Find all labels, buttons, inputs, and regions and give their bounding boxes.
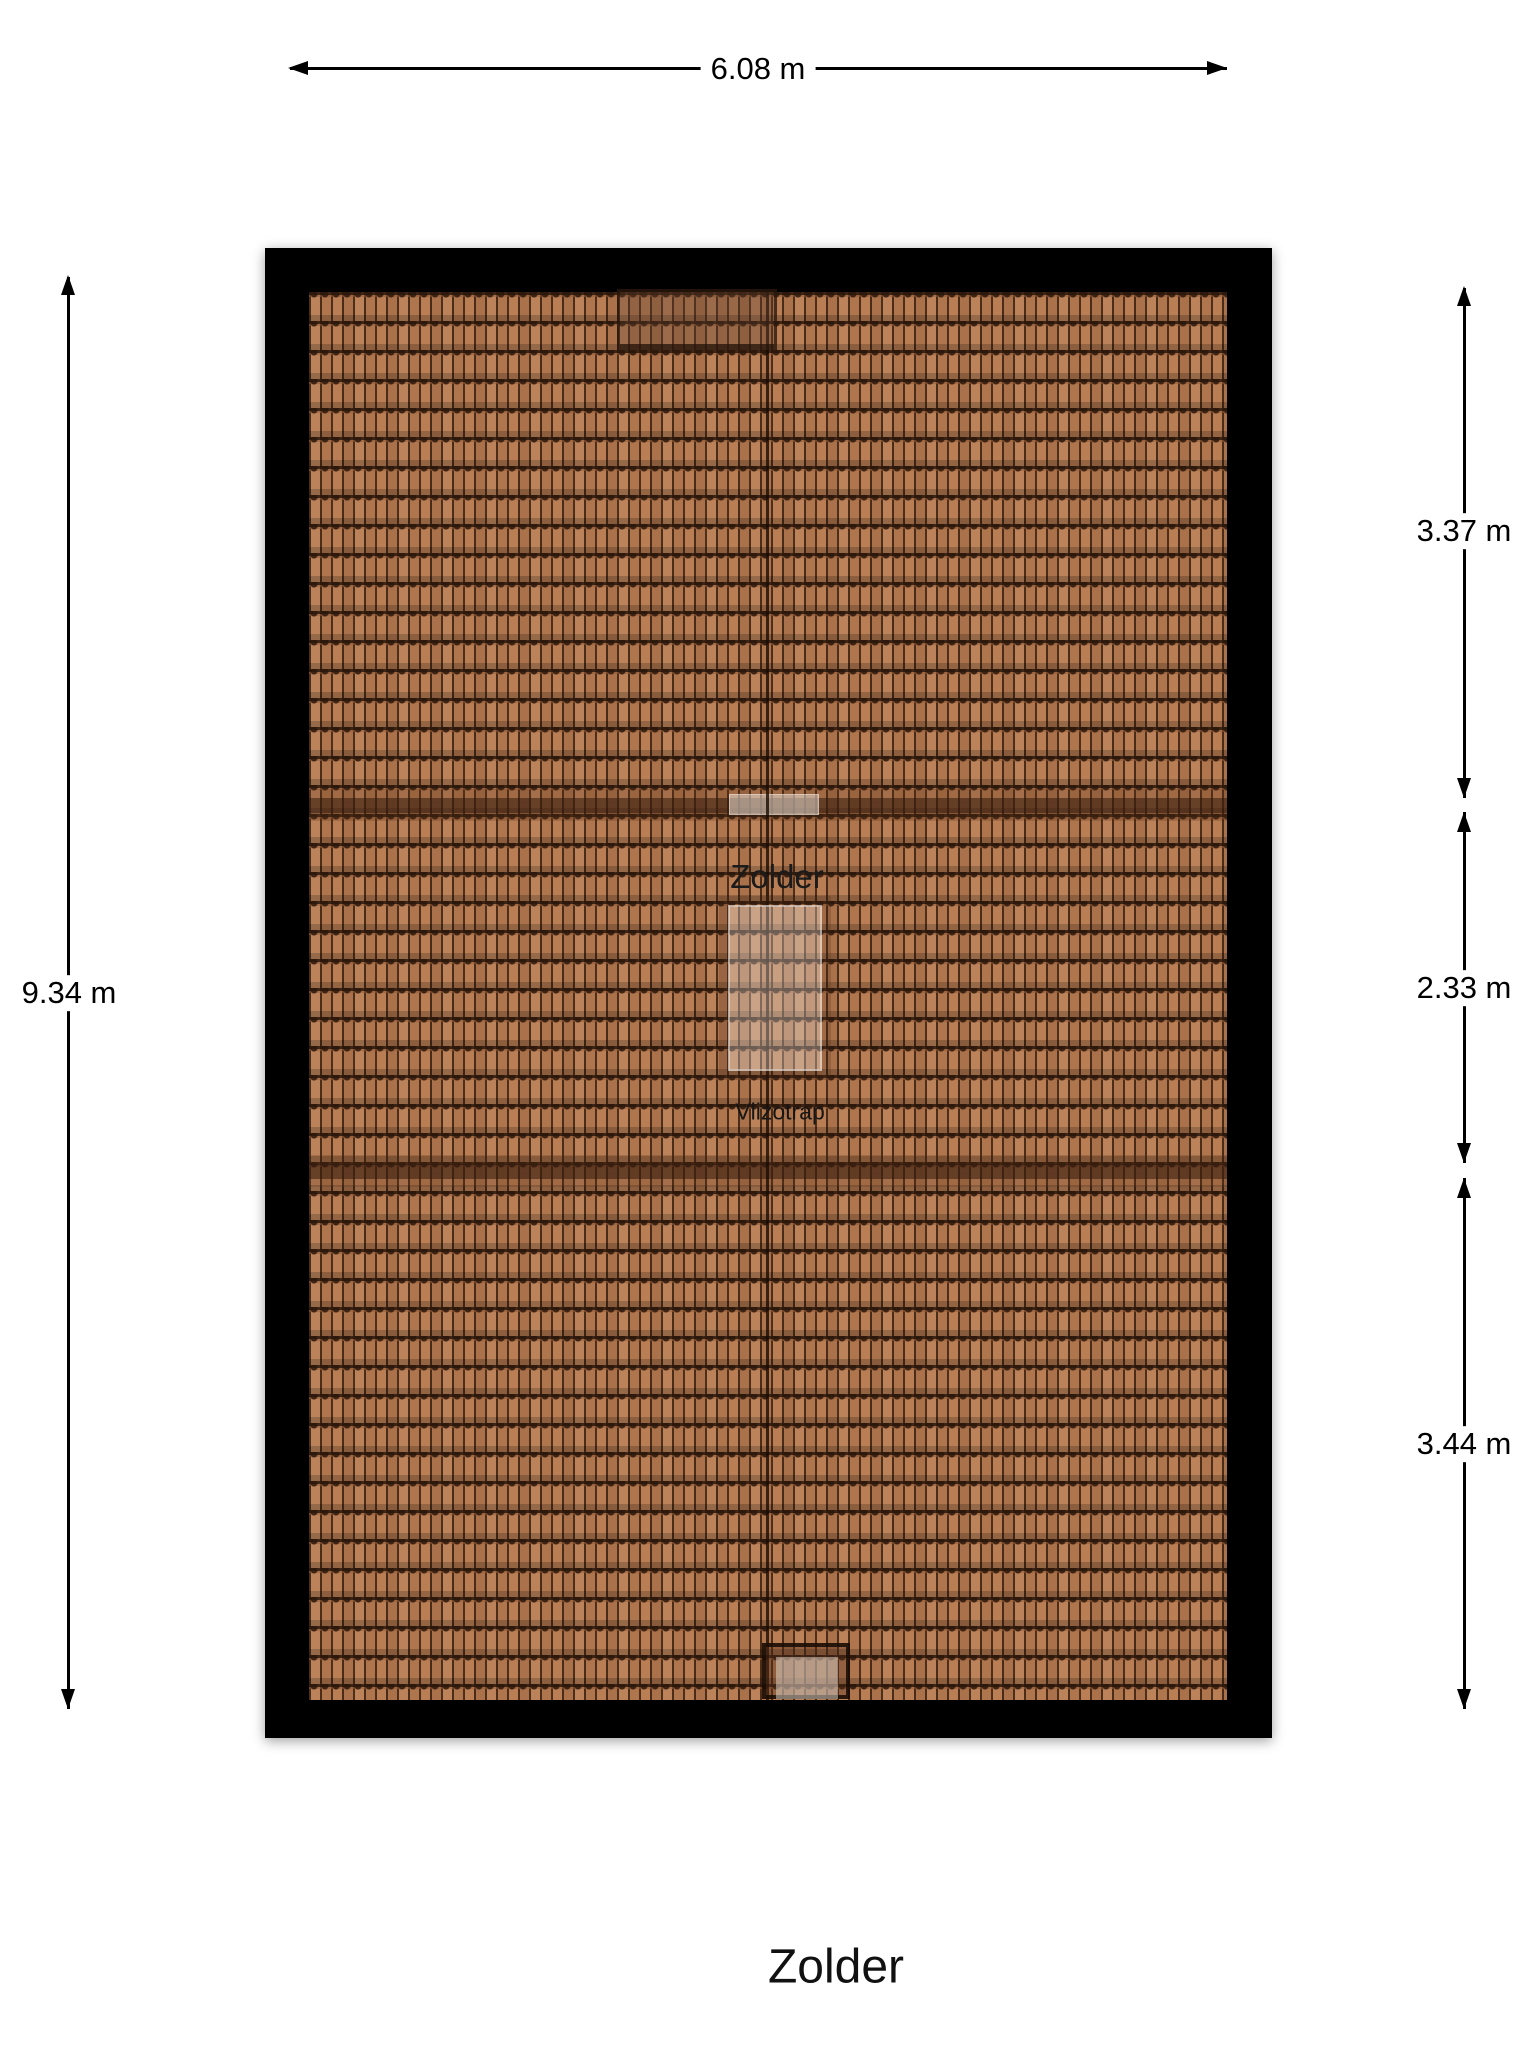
dimension-label-right-1: 3.37 m: [1407, 513, 1522, 549]
room-label: Zolder: [730, 858, 824, 896]
dimension-label-right-2: 2.33 m: [1407, 970, 1522, 1006]
arrowhead-down-icon: [61, 1689, 75, 1709]
arrowhead-right-icon: [1207, 61, 1227, 75]
bottom-roof-hatch-inner: [776, 1657, 838, 1699]
top-roof-window: [617, 289, 777, 350]
arrowhead-down-icon: [1457, 1689, 1471, 1709]
arrowhead-up-icon: [1457, 812, 1471, 832]
vlizotrap-label: Vlizotrap: [735, 1099, 824, 1126]
arrowhead-left-icon: [288, 61, 308, 75]
dimension-label-height: 9.34 m: [12, 975, 127, 1011]
page-title: Zolder: [768, 1940, 904, 1995]
arrowhead-down-icon: [1457, 778, 1471, 798]
vlizotrap-hatch: [728, 905, 822, 1071]
floorplan-page: Zolder Vlizotrap 6.08 m 9.34 m 3.37 m 2.…: [0, 0, 1536, 2048]
dimension-label-width: 6.08 m: [701, 51, 816, 87]
dimension-label-right-3: 3.44 m: [1407, 1426, 1522, 1462]
roof-opening-marker: [729, 794, 819, 815]
arrowhead-up-icon: [1457, 1178, 1471, 1198]
arrowhead-down-icon: [1457, 1143, 1471, 1163]
arrowhead-up-icon: [1457, 286, 1471, 306]
arrowhead-up-icon: [61, 275, 75, 295]
